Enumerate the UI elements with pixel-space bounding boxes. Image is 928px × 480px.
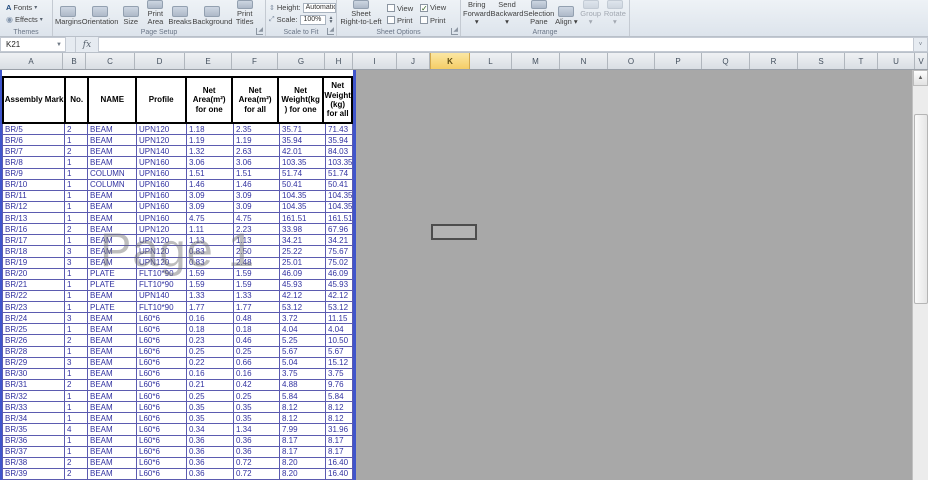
table-cell[interactable]: BR/19 (2, 258, 65, 268)
table-cell[interactable]: 1.19 (234, 135, 280, 145)
table-row[interactable]: BR/91COLUMNUPN1601.511.5151.7451.74 (2, 169, 353, 180)
table-cell[interactable]: 2 (65, 458, 88, 468)
column-header-D[interactable]: D (135, 53, 185, 69)
table-cell[interactable]: 35.94 (326, 135, 353, 145)
column-header-L[interactable]: L (470, 53, 512, 69)
table-cell[interactable]: BEAM (88, 191, 137, 201)
column-header-A[interactable]: A (0, 53, 63, 69)
table-cell[interactable]: BR/7 (2, 146, 65, 156)
table-cell[interactable]: 1 (65, 347, 88, 357)
table-cell[interactable]: L60*6 (137, 469, 187, 479)
table-cell[interactable]: 5.04 (280, 358, 326, 368)
table-cell[interactable]: 2 (65, 335, 88, 345)
table-cell[interactable]: 0.36 (187, 469, 234, 479)
column-header-V[interactable]: V (915, 53, 928, 69)
table-cell[interactable]: 0.36 (234, 436, 280, 446)
table-cell[interactable]: 3.06 (187, 157, 234, 167)
table-cell[interactable]: 1.59 (187, 280, 234, 290)
column-header-Q[interactable]: Q (702, 53, 750, 69)
table-cell[interactable]: BR/13 (2, 213, 65, 223)
table-cell[interactable]: 3.06 (234, 157, 280, 167)
table-row[interactable]: BR/131BEAMUPN1604.754.75161.51161.51 (2, 213, 353, 224)
arrange-button-align[interactable]: Align ▾ (554, 0, 578, 27)
table-cell[interactable]: 0.83 (187, 258, 234, 268)
table-row[interactable]: BR/211PLATEFLT10*901.591.5945.9345.93 (2, 280, 353, 291)
table-cell[interactable]: 0.25 (187, 347, 234, 357)
table-cell[interactable]: 10.50 (326, 335, 353, 345)
table-cell[interactable]: UPN160 (137, 180, 187, 190)
table-cell[interactable]: L60*6 (137, 313, 187, 323)
table-cell[interactable]: 1.51 (234, 169, 280, 179)
table-row[interactable]: BR/354BEAML60*60.341.347.9931.96 (2, 424, 353, 435)
table-cell[interactable]: UPN120 (137, 224, 187, 234)
table-row[interactable]: BR/392BEAML60*60.360.728.2016.40 (2, 469, 353, 480)
table-cell[interactable]: BR/11 (2, 191, 65, 201)
table-cell[interactable]: 1 (65, 291, 88, 301)
column-header-G[interactable]: G (278, 53, 325, 69)
table-cell[interactable]: 16.40 (326, 469, 353, 479)
table-cell[interactable]: 2 (65, 224, 88, 234)
table-cell[interactable]: 1 (65, 135, 88, 145)
table-cell[interactable]: 2.35 (234, 124, 280, 134)
table-cell[interactable]: 0.34 (187, 424, 234, 434)
table-cell[interactable]: BEAM (88, 413, 137, 423)
table-cell[interactable]: 9.76 (326, 380, 353, 390)
table-row[interactable]: BR/301BEAML60*60.160.163.753.75 (2, 369, 353, 380)
table-cell[interactable]: BEAM (88, 124, 137, 134)
table-cell[interactable]: 0.18 (187, 324, 234, 334)
table-cell[interactable]: PLATE (88, 269, 137, 279)
table-cell[interactable]: BEAM (88, 135, 137, 145)
table-cell[interactable]: 5.84 (326, 391, 353, 401)
table-cell[interactable]: BR/38 (2, 458, 65, 468)
table-cell[interactable]: 1.19 (187, 135, 234, 145)
table-cell[interactable]: BEAM (88, 313, 137, 323)
table-cell[interactable]: 1 (65, 213, 88, 223)
table-cell[interactable]: UPN160 (137, 157, 187, 167)
table-cell[interactable]: BR/35 (2, 424, 65, 434)
table-cell[interactable]: BR/30 (2, 369, 65, 379)
table-cell[interactable]: 1 (65, 280, 88, 290)
table-cell[interactable]: BEAM (88, 402, 137, 412)
table-cell[interactable]: L60*6 (137, 324, 187, 334)
view-checkbox-col2[interactable]: ✓View (420, 3, 446, 12)
column-header-J[interactable]: J (397, 53, 430, 69)
table-cell[interactable]: L60*6 (137, 369, 187, 379)
table-cell[interactable]: 3.09 (187, 191, 234, 201)
table-cell[interactable]: 5.25 (280, 335, 326, 345)
view-checkbox-col1[interactable]: View (387, 3, 413, 13)
table-cell[interactable]: BEAM (88, 347, 137, 357)
table-cell[interactable]: 0.35 (187, 413, 234, 423)
scroll-up-icon[interactable]: ▲ (913, 70, 928, 86)
table-cell[interactable]: 4.75 (187, 213, 234, 223)
chevron-down-icon[interactable]: ▼ (56, 42, 62, 48)
table-cell[interactable]: 4 (65, 424, 88, 434)
table-cell[interactable]: 0.35 (234, 402, 280, 412)
table-row[interactable]: BR/321BEAML60*60.250.255.845.84 (2, 391, 353, 402)
worksheet[interactable]: Assembly MarkNo.NAMEProfileNet Area(m²) … (0, 70, 928, 480)
table-cell[interactable]: 75.67 (326, 246, 353, 256)
table-cell[interactable]: L60*6 (137, 436, 187, 446)
table-cell[interactable]: BR/17 (2, 235, 65, 245)
table-cell[interactable]: 1.34 (234, 424, 280, 434)
table-cell[interactable]: BR/20 (2, 269, 65, 279)
table-cell[interactable]: BR/32 (2, 391, 65, 401)
table-cell[interactable]: BR/10 (2, 180, 65, 190)
table-cell[interactable]: BR/29 (2, 358, 65, 368)
print-checkbox-col2[interactable]: Print (420, 15, 445, 25)
table-cell[interactable]: 0.21 (187, 380, 234, 390)
table-cell[interactable]: 1 (65, 202, 88, 212)
table-cell[interactable]: 0.22 (187, 358, 234, 368)
table-cell[interactable]: 1 (65, 324, 88, 334)
table-cell[interactable]: 1 (65, 235, 88, 245)
table-cell[interactable]: 1.18 (187, 124, 234, 134)
table-cell[interactable]: 1 (65, 269, 88, 279)
formula-input[interactable] (98, 37, 913, 52)
table-cell[interactable]: BEAM (88, 458, 137, 468)
table-cell[interactable]: 1.33 (187, 291, 234, 301)
table-row[interactable]: BR/371BEAML60*60.360.368.178.17 (2, 447, 353, 458)
table-cell[interactable]: UPN120 (137, 258, 187, 268)
scale-input[interactable]: 100% (300, 15, 326, 25)
page-setup-dialog-launcher-icon[interactable]: ◢ (256, 28, 263, 35)
table-cell[interactable]: 3 (65, 258, 88, 268)
table-cell[interactable]: 42.01 (280, 146, 326, 156)
page-setup-button-print-area[interactable]: Print Area (143, 0, 168, 27)
table-cell[interactable]: 42.12 (280, 291, 326, 301)
table-cell[interactable]: 2.23 (234, 224, 280, 234)
table-cell[interactable]: BR/12 (2, 202, 65, 212)
table-cell[interactable]: UPN140 (137, 146, 187, 156)
table-cell[interactable]: BR/9 (2, 169, 65, 179)
column-header-N[interactable]: N (560, 53, 608, 69)
table-cell[interactable]: PLATE (88, 280, 137, 290)
table-cell[interactable]: BEAM (88, 380, 137, 390)
table-cell[interactable]: 0.48 (234, 313, 280, 323)
table-row[interactable]: BR/293BEAML60*60.220.665.0415.12 (2, 358, 353, 369)
table-cell[interactable]: 25.22 (280, 246, 326, 256)
table-cell[interactable]: 1.59 (234, 269, 280, 279)
table-cell[interactable]: BEAM (88, 424, 137, 434)
table-cell[interactable]: 31.96 (326, 424, 353, 434)
table-cell[interactable]: L60*6 (137, 391, 187, 401)
table-cell[interactable]: 1.59 (187, 269, 234, 279)
table-cell[interactable]: BEAM (88, 246, 137, 256)
table-cell[interactable]: 46.09 (326, 269, 353, 279)
table-cell[interactable]: L60*6 (137, 402, 187, 412)
table-cell[interactable]: 0.23 (187, 335, 234, 345)
table-cell[interactable]: L60*6 (137, 447, 187, 457)
table-cell[interactable]: 3.75 (280, 369, 326, 379)
column-header-F[interactable]: F (232, 53, 278, 69)
table-cell[interactable]: 3 (65, 313, 88, 323)
checkbox-icon[interactable] (420, 16, 428, 24)
table-cell[interactable]: 104.35 (280, 202, 326, 212)
table-cell[interactable]: 8.17 (326, 447, 353, 457)
table-cell[interactable]: 1 (65, 169, 88, 179)
page-setup-button-margins[interactable]: Margins (55, 0, 82, 27)
table-cell[interactable]: 1 (65, 436, 88, 446)
table-row[interactable]: BR/341BEAML60*60.350.358.128.12 (2, 413, 353, 424)
table-cell[interactable]: UPN160 (137, 169, 187, 179)
table-cell[interactable]: 0.72 (234, 458, 280, 468)
page-setup-button-print-titles[interactable]: Print Titles (232, 0, 257, 27)
page-break-line-right[interactable] (353, 70, 356, 480)
table-cell[interactable]: BEAM (88, 436, 137, 446)
table-cell[interactable]: 1 (65, 369, 88, 379)
table-cell[interactable]: 0.25 (234, 347, 280, 357)
table-cell[interactable]: 15.12 (326, 358, 353, 368)
table-cell[interactable]: 5.67 (326, 347, 353, 357)
table-cell[interactable]: 104.35 (280, 191, 326, 201)
table-cell[interactable]: 161.51 (280, 213, 326, 223)
table-cell[interactable]: 1 (65, 191, 88, 201)
table-cell[interactable]: 0.16 (187, 369, 234, 379)
table-cell[interactable]: 0.16 (187, 313, 234, 323)
scrollbar-thumb[interactable] (914, 114, 928, 304)
table-cell[interactable]: 2 (65, 469, 88, 479)
table-cell[interactable]: L60*6 (137, 458, 187, 468)
table-cell[interactable]: 0.36 (187, 458, 234, 468)
table-cell[interactable]: 4.04 (280, 324, 326, 334)
table-cell[interactable]: BR/6 (2, 135, 65, 145)
table-cell[interactable]: 42.12 (326, 291, 353, 301)
table-cell[interactable]: 1.77 (234, 302, 280, 312)
table-cell[interactable]: BR/26 (2, 335, 65, 345)
table-cell[interactable]: 103.35 (326, 157, 353, 167)
height-dropdown[interactable]: Automatic▾ (303, 3, 336, 13)
table-cell[interactable]: UPN120 (137, 235, 187, 245)
table-row[interactable]: BR/81BEAMUPN1603.063.06103.35103.35 (2, 157, 353, 168)
table-cell[interactable]: 53.12 (326, 302, 353, 312)
arrange-button-selection-pane[interactable]: Selection Pane (523, 0, 554, 27)
table-cell[interactable]: 2.63 (234, 146, 280, 156)
table-cell[interactable]: 2 (65, 146, 88, 156)
table-cell[interactable]: 35.71 (280, 124, 326, 134)
table-cell[interactable]: 8.20 (280, 458, 326, 468)
table-cell[interactable]: 7.99 (280, 424, 326, 434)
sheet-options-dialog-launcher-icon[interactable]: ◢ (451, 28, 458, 35)
table-cell[interactable]: UPN120 (137, 246, 187, 256)
print-checkbox-col1[interactable]: Print (387, 15, 412, 25)
table-cell[interactable]: 1 (65, 413, 88, 423)
table-row[interactable]: BR/361BEAML60*60.360.368.178.17 (2, 436, 353, 447)
table-cell[interactable]: BEAM (88, 235, 137, 245)
table-cell[interactable]: UPN120 (137, 124, 187, 134)
table-cell[interactable]: BEAM (88, 224, 137, 234)
table-cell[interactable]: 1.11 (187, 224, 234, 234)
table-cell[interactable]: 0.42 (234, 380, 280, 390)
table-row[interactable]: BR/72BEAMUPN1401.322.6342.0184.03 (2, 146, 353, 157)
formula-bar-expand-icon[interactable]: ˅ (913, 37, 928, 52)
table-cell[interactable]: 8.17 (280, 447, 326, 457)
table-cell[interactable]: 1.51 (187, 169, 234, 179)
table-cell[interactable]: 33.98 (280, 224, 326, 234)
table-cell[interactable]: BR/8 (2, 157, 65, 167)
table-cell[interactable]: UPN160 (137, 202, 187, 212)
column-header-P[interactable]: P (655, 53, 702, 69)
table-row[interactable]: BR/183BEAMUPN1200.832.5025.2275.67 (2, 246, 353, 257)
table-row[interactable]: BR/251BEAML60*60.180.184.044.04 (2, 324, 353, 335)
table-cell[interactable]: 0.35 (187, 402, 234, 412)
table-cell[interactable]: 53.12 (280, 302, 326, 312)
table-cell[interactable]: BEAM (88, 324, 137, 334)
table-cell[interactable]: FLT10*90 (137, 302, 187, 312)
table-cell[interactable]: 1.46 (234, 180, 280, 190)
table-cell[interactable]: 2 (65, 124, 88, 134)
table-cell[interactable]: 0.83 (187, 246, 234, 256)
scale-spinner[interactable]: ▲▼ (328, 16, 333, 24)
table-row[interactable]: BR/231PLATEFLT10*901.771.7753.1253.12 (2, 302, 353, 313)
table-cell[interactable]: COLUMN (88, 169, 137, 179)
column-header-B[interactable]: B (63, 53, 86, 69)
table-cell[interactable]: UPN120 (137, 135, 187, 145)
table-cell[interactable]: BEAM (88, 258, 137, 268)
table-cell[interactable]: 0.36 (187, 447, 234, 457)
table-row[interactable]: BR/201PLATEFLT10*901.591.5946.0946.09 (2, 269, 353, 280)
table-cell[interactable]: 4.75 (234, 213, 280, 223)
table-cell[interactable]: 8.12 (326, 413, 353, 423)
table-cell[interactable]: 0.36 (234, 447, 280, 457)
table-cell[interactable]: 0.18 (234, 324, 280, 334)
table-cell[interactable]: 3 (65, 246, 88, 256)
column-header-T[interactable]: T (845, 53, 878, 69)
table-cell[interactable]: BEAM (88, 291, 137, 301)
table-cell[interactable]: UPN160 (137, 213, 187, 223)
table-cell[interactable]: BR/34 (2, 413, 65, 423)
column-header-I[interactable]: I (353, 53, 397, 69)
column-header-S[interactable]: S (798, 53, 845, 69)
column-header-E[interactable]: E (185, 53, 232, 69)
table-cell[interactable]: 34.21 (326, 235, 353, 245)
table-cell[interactable]: 11.15 (326, 313, 353, 323)
table-cell[interactable]: 8.12 (280, 402, 326, 412)
arrange-button-bring-forward[interactable]: Bring Forward ▾ (463, 0, 491, 27)
table-row[interactable]: BR/312BEAML60*60.210.424.889.76 (2, 380, 353, 391)
table-cell[interactable]: 104.35 (326, 191, 353, 201)
table-row[interactable]: BR/193BEAMUPN1200.832.4825.0175.02 (2, 258, 353, 269)
table-cell[interactable]: 161.51 (326, 213, 353, 223)
table-cell[interactable]: 3.09 (234, 191, 280, 201)
table-cell[interactable]: 45.93 (280, 280, 326, 290)
table-cell[interactable]: BR/33 (2, 402, 65, 412)
table-cell[interactable]: BEAM (88, 146, 137, 156)
table-cell[interactable]: 1.13 (234, 235, 280, 245)
table-cell[interactable]: 1.13 (187, 235, 234, 245)
checkbox-icon[interactable] (387, 4, 395, 12)
table-cell[interactable]: 51.74 (280, 169, 326, 179)
checkbox-icon[interactable] (387, 16, 395, 24)
table-cell[interactable]: 75.02 (326, 258, 353, 268)
table-cell[interactable]: 71.43 (326, 124, 353, 134)
sheet-right-to-left-button[interactable]: Sheet Right-to-Left (340, 0, 382, 27)
table-cell[interactable]: L60*6 (137, 413, 187, 423)
table-row[interactable]: BR/61BEAMUPN1201.191.1935.9435.94 (2, 135, 353, 146)
table-row[interactable]: BR/101COLUMNUPN1601.461.4650.4150.41 (2, 180, 353, 191)
table-row[interactable]: BR/162BEAMUPN1201.112.2333.9867.96 (2, 224, 353, 235)
table-cell[interactable]: BEAM (88, 335, 137, 345)
table-row[interactable]: BR/111BEAMUPN1603.093.09104.35104.35 (2, 191, 353, 202)
table-cell[interactable]: BR/28 (2, 347, 65, 357)
table-cell[interactable]: 16.40 (326, 458, 353, 468)
table-cell[interactable]: 3 (65, 358, 88, 368)
table-cell[interactable]: 50.41 (280, 180, 326, 190)
table-cell[interactable]: 5.84 (280, 391, 326, 401)
table-cell[interactable]: PLATE (88, 302, 137, 312)
insert-function-icon[interactable]: fx (76, 37, 98, 52)
table-cell[interactable]: BR/23 (2, 302, 65, 312)
scale-to-fit-dialog-launcher-icon[interactable]: ◢ (327, 28, 334, 35)
table-cell[interactable]: 0.35 (234, 413, 280, 423)
column-header-K[interactable]: K (430, 53, 470, 69)
table-cell[interactable]: 8.17 (326, 436, 353, 446)
table-cell[interactable]: 2.50 (234, 246, 280, 256)
table-row[interactable]: BR/121BEAMUPN1603.093.09104.35104.35 (2, 202, 353, 213)
page-setup-button-background[interactable]: Background (192, 0, 232, 27)
table-cell[interactable]: BEAM (88, 358, 137, 368)
table-cell[interactable]: BEAM (88, 213, 137, 223)
table-cell[interactable]: FLT10*90 (137, 280, 187, 290)
table-cell[interactable]: 8.17 (280, 436, 326, 446)
table-cell[interactable]: 4.88 (280, 380, 326, 390)
table-cell[interactable]: 35.94 (280, 135, 326, 145)
name-box[interactable]: K21 ▼ (0, 37, 66, 52)
table-cell[interactable]: BR/24 (2, 313, 65, 323)
table-cell[interactable]: 8.12 (280, 413, 326, 423)
table-row[interactable]: BR/262BEAML60*60.230.465.2510.50 (2, 335, 353, 346)
table-cell[interactable]: 1 (65, 302, 88, 312)
table-cell[interactable]: UPN140 (137, 291, 187, 301)
page-setup-button-size[interactable]: Size (118, 0, 143, 27)
table-cell[interactable]: 1.59 (234, 280, 280, 290)
table-row[interactable]: BR/382BEAML60*60.360.728.2016.40 (2, 458, 353, 469)
table-row[interactable]: BR/331BEAML60*60.350.358.128.12 (2, 402, 353, 413)
table-cell[interactable]: BR/31 (2, 380, 65, 390)
table-cell[interactable]: 34.21 (280, 235, 326, 245)
page-setup-button-breaks[interactable]: Breaks (168, 0, 193, 27)
table-row[interactable]: BR/52BEAMUPN1201.182.3535.7171.43 (2, 124, 353, 135)
table-cell[interactable]: 50.41 (326, 180, 353, 190)
table-cell[interactable]: BR/21 (2, 280, 65, 290)
table-cell[interactable]: 8.12 (326, 402, 353, 412)
table-cell[interactable]: BEAM (88, 157, 137, 167)
table-row[interactable]: BR/221BEAMUPN1401.331.3342.1242.12 (2, 291, 353, 302)
effects-button[interactable]: ◉ Effects ▾ (6, 14, 43, 25)
table-cell[interactable]: 0.66 (234, 358, 280, 368)
table-cell[interactable]: BEAM (88, 391, 137, 401)
table-cell[interactable]: 104.35 (326, 202, 353, 212)
table-cell[interactable]: L60*6 (137, 335, 187, 345)
column-header-R[interactable]: R (750, 53, 798, 69)
table-cell[interactable]: 1.77 (187, 302, 234, 312)
table-cell[interactable]: L60*6 (137, 347, 187, 357)
table-cell[interactable]: 84.03 (326, 146, 353, 156)
table-cell[interactable]: 1.32 (187, 146, 234, 156)
table-cell[interactable]: 0.46 (234, 335, 280, 345)
table-cell[interactable]: 45.93 (326, 280, 353, 290)
table-cell[interactable]: BEAM (88, 202, 137, 212)
column-header-O[interactable]: O (608, 53, 655, 69)
table-cell[interactable]: BR/16 (2, 224, 65, 234)
column-header-M[interactable]: M (512, 53, 560, 69)
table-cell[interactable]: 8.20 (280, 469, 326, 479)
table-cell[interactable]: L60*6 (137, 380, 187, 390)
table-cell[interactable]: 3.09 (187, 202, 234, 212)
column-header-U[interactable]: U (878, 53, 915, 69)
checkbox-icon[interactable]: ✓ (420, 4, 428, 12)
